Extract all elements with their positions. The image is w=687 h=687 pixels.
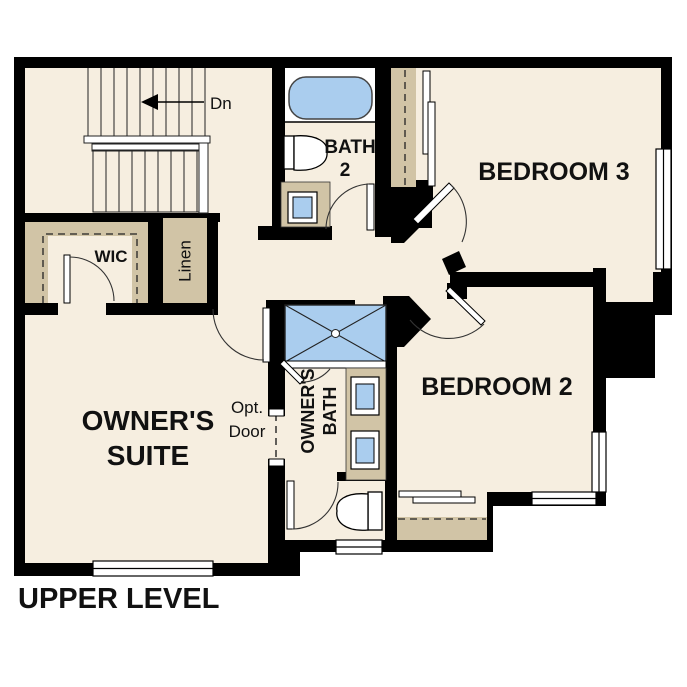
opt-door-label-line1: Opt. (231, 398, 263, 417)
owners-bath-label-line2: BATH (320, 387, 340, 436)
opt-door-label-line2: Door (229, 422, 266, 441)
wic-door-leaf (64, 255, 70, 303)
owners-suite-label-line2: SUITE (107, 440, 189, 471)
wic-label: WIC (94, 247, 127, 266)
linen-label: Linen (175, 240, 194, 282)
owners-suite-label-line1: OWNER'S (82, 405, 215, 436)
bedroom2-closet-slider-1 (399, 491, 461, 497)
bedroom3-right-window (656, 149, 671, 269)
bath2-vanity (281, 182, 330, 227)
bath2-label-line1: BATH (324, 137, 375, 158)
floorplan-canvas: Dn WIC Linen BATH 2 BEDROOM 3 BEDROOM 2 … (0, 0, 687, 687)
bedroom2-label: BEDROOM 2 (421, 373, 572, 401)
stair-railing-return (199, 143, 208, 213)
bedroom2-closet-slider-2 (413, 497, 475, 503)
shower (285, 305, 386, 368)
owners-bath-vanity (346, 368, 386, 480)
bedroom3-label: BEDROOM 3 (478, 158, 629, 186)
bath2-label-line2: 2 (340, 160, 351, 181)
page-title: UPPER LEVEL (18, 583, 219, 615)
floorplan-drawing: Dn WIC Linen BATH 2 BEDROOM 3 BEDROOM 2 … (0, 0, 687, 687)
bedroom2-right-window (592, 432, 606, 492)
wc-door-leaf (287, 481, 294, 529)
bathtub (289, 77, 372, 119)
stair-railing (84, 136, 210, 143)
wc-toilet (337, 492, 382, 530)
bath2-toilet (284, 136, 327, 171)
bedroom3-floor-nook (602, 268, 653, 302)
bath2-door-leaf (367, 184, 374, 230)
shower-entry (285, 361, 386, 368)
bedroom3-closet-bypass-door-2 (428, 102, 435, 186)
bedroom3-closet (391, 68, 435, 187)
water-closet-window (336, 540, 382, 554)
wic-closet (25, 222, 148, 303)
owners-bath-label-line1: OWNER'S (298, 368, 318, 453)
wic-door-gap (58, 303, 106, 315)
owners-suite-door-leaf (263, 308, 270, 362)
stairs-direction-label: Dn (210, 94, 232, 113)
owners-suite-window (93, 561, 213, 576)
bedroom2-bottom-window (532, 492, 596, 505)
